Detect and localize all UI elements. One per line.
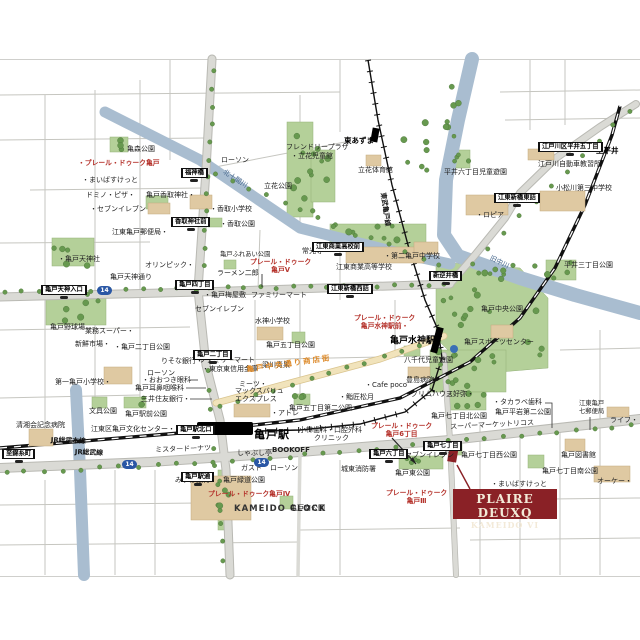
- tree-icon: [456, 100, 462, 106]
- map-label: クリニック: [314, 434, 349, 442]
- tree-icon: [401, 136, 407, 142]
- property-logo: PLAIRE DEUXQ KAMEIDO VI: [453, 489, 557, 519]
- map-label: 水神小学校: [255, 317, 290, 325]
- tree-icon: [488, 272, 492, 276]
- tree-icon: [124, 287, 128, 291]
- tree-icon: [423, 139, 429, 145]
- tree-icon: [213, 172, 217, 176]
- tree-icon: [288, 456, 292, 460]
- map-label: 城東消防署: [341, 465, 376, 473]
- bus-stop-icon: [187, 228, 195, 231]
- map-label: 亀戸駅前公園: [125, 410, 167, 418]
- tree-icon: [452, 312, 457, 317]
- route-shield: 14: [254, 458, 269, 467]
- brand-label-kameido-iii: プレール・ドゥーク 亀戸Ⅲ: [386, 489, 447, 505]
- map-label: 豊島病院: [406, 376, 434, 384]
- tree-icon: [628, 109, 632, 113]
- bus-stop-icon: [209, 361, 217, 364]
- map-label: ライフ・: [610, 416, 638, 424]
- tree-icon: [493, 267, 498, 272]
- map-label: 三井住友銀行・: [141, 395, 190, 403]
- tree-icon: [486, 247, 490, 251]
- map-canvas: 亀森公園・プレール・ドゥーク亀戸・まいばすけっとドミノ・ピザ・・セブンイレブン亀…: [0, 0, 640, 640]
- tree-icon: [482, 270, 488, 276]
- tree-icon: [331, 224, 336, 229]
- tree-icon: [295, 177, 301, 183]
- tree-icon: [309, 284, 313, 288]
- tree-icon: [310, 208, 315, 213]
- map-label: ローソン: [221, 156, 249, 164]
- tree-icon: [565, 270, 570, 275]
- map-label: BOOKOFF: [272, 446, 310, 454]
- tree-icon: [292, 284, 296, 288]
- tree-icon: [405, 160, 409, 164]
- tree-icon: [118, 143, 124, 149]
- tree-icon: [21, 469, 25, 473]
- map-label: オリンピック・: [145, 261, 194, 269]
- map-label: 小松川第三中学校: [556, 184, 612, 192]
- map-label: 亀戸スポーツセンター: [464, 338, 534, 346]
- bus-stop-label: 江戸川区平井五丁目: [538, 133, 603, 156]
- bus-stop-label: 亀戸四丁目: [175, 271, 214, 294]
- map-label: マックスバリュ エクスプレス: [235, 387, 284, 404]
- bus-stop-icon: [192, 436, 200, 439]
- bus-stop-label: 江東新橋東詰: [494, 184, 540, 207]
- tree-icon: [202, 263, 206, 267]
- map-label: ・まいばすけっと: [491, 480, 547, 488]
- map-label: ・亀戸天神社: [58, 255, 100, 263]
- bus-stop-label: 至錦糸町: [2, 440, 35, 463]
- tree-icon: [454, 403, 460, 409]
- tree-icon: [321, 451, 325, 455]
- map-label: 亀戸南公園: [290, 504, 325, 512]
- map-label: 亀戸七丁目西公園: [461, 451, 517, 459]
- tree-icon: [218, 479, 222, 483]
- tree-icon: [498, 276, 504, 282]
- tree-icon: [210, 105, 214, 109]
- map-label: 第一亀戸小学校・: [55, 378, 111, 386]
- tree-icon: [464, 383, 470, 389]
- map-label: ファミリーマート: [251, 291, 307, 299]
- tree-icon: [283, 201, 287, 205]
- map-label: 亀戸中央公園: [481, 305, 523, 313]
- map-label: 江東亀戸郵便局・: [112, 228, 168, 236]
- tree-icon: [424, 168, 429, 173]
- bus-stop-icon: [191, 291, 199, 294]
- map-label: 亀戸東公園: [395, 469, 430, 477]
- map-label: ローソン: [270, 464, 298, 472]
- tree-icon: [136, 465, 140, 469]
- map-label: 亀戸七丁目北公園: [431, 412, 487, 420]
- bus-stop-label: 江東新橋西詰: [327, 275, 373, 298]
- map-label: 亀戸緑道公園: [223, 476, 265, 484]
- tree-icon: [357, 449, 361, 453]
- rail-label-jr-sobu-main: JR総武本線: [51, 436, 86, 445]
- tree-icon: [446, 379, 451, 384]
- map-label: ・立花児童館: [291, 152, 333, 160]
- tree-icon: [472, 287, 477, 292]
- tree-icon: [156, 462, 160, 466]
- bus-stop-label: 江東商業高校前: [312, 233, 364, 256]
- map-label: 亀戸五丁目第二公園: [289, 404, 352, 412]
- tree-icon: [290, 383, 294, 387]
- tree-icon: [472, 366, 477, 371]
- tree-icon: [551, 276, 556, 281]
- map-label: フレンドリープラザ: [286, 143, 349, 151]
- tree-icon: [241, 286, 245, 290]
- tree-icon: [337, 450, 341, 454]
- tree-icon: [212, 69, 216, 73]
- property-logo-name: PLAIRE DEUXQ: [453, 492, 557, 520]
- tree-icon: [220, 539, 224, 543]
- tree-icon: [445, 119, 450, 124]
- tree-icon: [453, 378, 458, 383]
- tree-icon: [477, 271, 481, 275]
- tree-icon: [42, 470, 46, 474]
- bus-stop-label: 亀戸天神入口: [41, 276, 87, 299]
- tree-icon: [97, 465, 101, 469]
- map-label: 立花公園: [264, 182, 292, 190]
- tree-icon: [212, 446, 216, 450]
- tree-icon: [410, 442, 414, 446]
- route-shield: 14: [97, 286, 112, 295]
- tree-icon: [449, 296, 453, 300]
- tree-icon: [210, 122, 214, 126]
- bus-stop-icon: [60, 296, 68, 299]
- tree-icon: [324, 177, 330, 183]
- tree-icon: [203, 246, 207, 250]
- bus-stop-icon: [334, 253, 342, 256]
- tree-icon: [520, 434, 524, 438]
- tree-icon: [456, 153, 460, 157]
- map-label: 亀戸野球場: [50, 323, 85, 331]
- tree-icon: [310, 376, 314, 380]
- tree-icon: [158, 287, 162, 291]
- tree-icon: [83, 300, 89, 306]
- map-label: ・タカラベ歯科: [493, 398, 542, 406]
- tree-icon: [226, 285, 230, 289]
- tree-icon: [52, 246, 57, 251]
- tree-icon: [208, 407, 212, 411]
- map-label: 亀戸香取神社・: [146, 191, 195, 199]
- tree-icon: [475, 357, 481, 363]
- tree-icon: [382, 354, 386, 358]
- tree-icon: [554, 431, 558, 435]
- map-label: ・亀戸二丁目公園: [114, 343, 170, 351]
- tree-icon: [464, 437, 468, 441]
- tree-icon: [538, 353, 542, 357]
- tree-icon: [511, 263, 516, 268]
- map-label: 清湘会記念病院: [16, 421, 65, 429]
- map-label: 亀戸耳鼻咽喉科: [135, 384, 184, 392]
- property-logo-sub: KAMEIDO VI: [453, 520, 557, 530]
- tree-icon: [77, 314, 84, 321]
- tree-icon: [96, 299, 100, 303]
- bus-stop-icon: [439, 452, 447, 455]
- brand-label-kameido-v: プレール・ドゥーク 亀戸V: [250, 258, 311, 274]
- tree-icon: [59, 246, 65, 252]
- bus-stop-icon: [194, 483, 202, 486]
- tree-icon: [458, 322, 464, 328]
- brand-label-kameido: ・プレール・ドゥーク亀戸: [78, 159, 160, 167]
- tree-icon: [490, 353, 495, 358]
- tree-icon: [3, 290, 7, 294]
- tree-icon: [84, 263, 90, 269]
- tree-icon: [452, 134, 456, 138]
- tree-icon: [298, 207, 302, 211]
- bus-stop-icon: [513, 204, 521, 207]
- map-label: 亀森公園: [127, 145, 155, 153]
- tree-icon: [204, 192, 208, 196]
- tree-icon: [362, 361, 366, 365]
- tree-icon: [375, 224, 380, 229]
- map-label: 新鮮市場・: [75, 340, 110, 348]
- bus-stop-label: 亀戸七丁目: [423, 432, 462, 455]
- tree-icon: [307, 169, 313, 175]
- tree-icon: [218, 404, 222, 408]
- tree-icon: [475, 402, 481, 408]
- bus-stop-label: 福神橋: [181, 159, 208, 182]
- map-label: ・香取小学校: [210, 205, 252, 213]
- map-label: ・ロピア: [476, 211, 504, 219]
- bus-stop-label: 新逆井橋: [429, 262, 462, 285]
- map-label: ・Cafe poco: [365, 381, 407, 389]
- tree-icon: [61, 469, 65, 473]
- map-label: オーケー・: [597, 477, 632, 485]
- brand-label-suijin-ekimae: プレール・ドゥーク 亀戸水神駅前・: [354, 314, 415, 330]
- map-label: 江東商業高等学校: [336, 263, 392, 271]
- tree-icon: [517, 213, 521, 217]
- tree-icon: [463, 313, 468, 318]
- property-leader-line: [457, 465, 470, 489]
- tree-icon: [611, 123, 615, 127]
- tree-icon: [466, 159, 471, 164]
- bus-stop-icon: [566, 153, 574, 156]
- map-label: ・セブンイレブン: [90, 205, 146, 213]
- tree-icon: [474, 292, 480, 298]
- tree-icon: [174, 461, 178, 465]
- tobu-station-icon: [450, 345, 458, 353]
- map-label: 業務スーパー・: [85, 327, 134, 335]
- tree-icon: [264, 192, 268, 196]
- tree-icon: [465, 403, 470, 408]
- tree-icon: [467, 306, 473, 312]
- tree-icon: [316, 215, 320, 219]
- map-label: 亀戸平岩第二公園: [495, 408, 551, 416]
- tree-icon: [116, 464, 120, 468]
- tree-icon: [230, 459, 234, 463]
- map-label: 江東亀戸 七郵便局: [579, 400, 604, 415]
- map-label: ・鮨匠松月: [339, 393, 374, 401]
- tree-icon: [5, 470, 9, 474]
- tree-icon: [299, 395, 304, 400]
- brand-label-kameido-iv: プレール・ドゥーク亀戸Ⅳ: [208, 490, 290, 498]
- tree-icon: [400, 349, 404, 353]
- tree-icon: [301, 195, 307, 201]
- map-label: ドミノ・ピザ・: [86, 191, 135, 199]
- tree-icon: [247, 187, 251, 191]
- map-label: 亀戸七丁目南公園: [542, 467, 598, 475]
- tree-icon: [502, 231, 506, 235]
- tree-icon: [79, 468, 83, 472]
- tree-icon: [422, 119, 429, 126]
- tree-icon: [345, 365, 349, 369]
- tree-icon: [574, 428, 578, 432]
- tree-icon: [209, 87, 213, 91]
- tree-icon: [221, 559, 225, 563]
- river-yokojukken: [76, 390, 84, 575]
- tree-icon: [452, 159, 456, 163]
- tree-icon: [63, 306, 69, 312]
- tree-icon: [538, 431, 542, 435]
- map-label: 江東区亀戸文化センター・: [91, 425, 175, 433]
- tree-icon: [382, 236, 386, 240]
- tree-icon: [443, 124, 449, 130]
- tree-icon: [294, 133, 300, 139]
- bus-stop-label: 亀戸駅通: [181, 463, 214, 486]
- map-label: 平井六丁目児童遊園: [444, 168, 507, 176]
- tree-icon: [292, 393, 298, 399]
- bus-stop-icon: [346, 295, 354, 298]
- tree-icon: [533, 308, 539, 314]
- tree-icon: [19, 289, 23, 293]
- tree-icon: [549, 184, 553, 188]
- tree-icon: [410, 283, 414, 287]
- tree-icon: [218, 521, 222, 525]
- map-label: 文具公園: [89, 407, 117, 415]
- tree-icon: [424, 147, 430, 153]
- tree-icon: [369, 235, 373, 239]
- bus-stop-label: 亀戸六丁目: [369, 440, 408, 463]
- tree-icon: [419, 164, 424, 169]
- tree-icon: [65, 248, 70, 253]
- map-label: 亀戸天神通り: [110, 273, 152, 281]
- map-label: 亀戸図書館: [561, 451, 596, 459]
- tree-icon: [387, 242, 391, 246]
- tree-icon: [501, 434, 505, 438]
- tree-icon: [392, 283, 396, 287]
- tree-icon: [492, 360, 496, 364]
- tree-icon: [217, 503, 223, 509]
- bus-stop-icon: [15, 460, 23, 463]
- map-label: セブンイレブン: [195, 305, 244, 313]
- map-label: 立花体育館: [358, 166, 393, 174]
- map-label: 三好弥・: [446, 390, 474, 398]
- tree-icon: [610, 426, 614, 430]
- route-shield: 14: [122, 460, 137, 469]
- map-label: 亀戸五丁目公園: [266, 341, 315, 349]
- station-label-kameido-suijin: 亀戸水神駅: [390, 336, 435, 347]
- tree-icon: [327, 371, 331, 375]
- tree-icon: [481, 392, 486, 397]
- tree-icon: [539, 346, 545, 352]
- map-label: ・香取公園: [220, 220, 255, 228]
- bus-stop-icon: [190, 179, 198, 182]
- tree-icon: [544, 271, 550, 277]
- map-label: ・まいばすけっと: [82, 176, 138, 184]
- tree-icon: [532, 264, 537, 269]
- map-label: 平井三丁目公園: [564, 261, 613, 269]
- tree-icon: [482, 436, 486, 440]
- tree-icon: [207, 388, 211, 392]
- rail-label-jr-sobu: JR総武線: [75, 448, 103, 457]
- tree-icon: [470, 262, 474, 266]
- map-label: 八千代児童遊園: [404, 356, 453, 364]
- map-label: 江戸川自動車教習所: [538, 160, 601, 168]
- tree-icon: [141, 287, 145, 291]
- tree-icon: [375, 285, 379, 289]
- map-label: ・第二亀戸中学校: [384, 252, 440, 260]
- tree-icon: [593, 427, 597, 431]
- bus-stop-label: 亀戸二丁目: [193, 341, 232, 364]
- tree-icon: [441, 298, 446, 303]
- bus-stop-icon: [442, 282, 450, 285]
- tree-icon: [394, 237, 400, 243]
- bus-stop-label: 亀戸駅北口: [176, 416, 215, 439]
- map-label: しゃぶし亭: [237, 449, 272, 457]
- tree-icon: [565, 170, 569, 174]
- station-label-higashiazuma: 東あずま: [344, 136, 374, 145]
- tree-icon: [449, 84, 454, 89]
- tree-icon: [208, 140, 212, 144]
- bus-stop-icon: [385, 460, 393, 463]
- bus-stop-label: 香取神社前: [171, 208, 210, 231]
- station-label-kameido: 亀戸駅: [254, 428, 290, 441]
- base-map: [0, 0, 640, 640]
